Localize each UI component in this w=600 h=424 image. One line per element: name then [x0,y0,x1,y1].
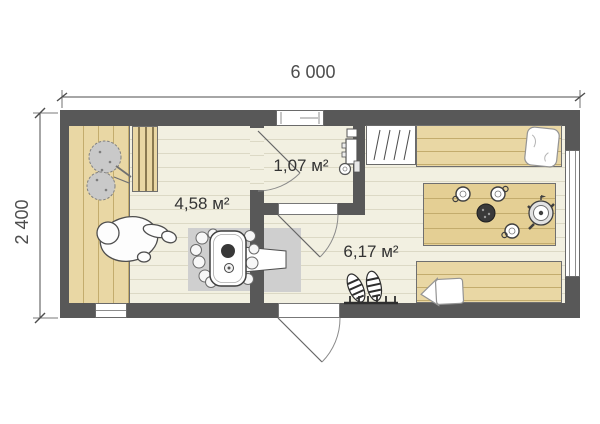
partition-washroom-bottom-right [338,203,365,215]
washroom-lounge-door-leaf [278,203,338,215]
window-top [276,110,324,126]
washroom-door-threshold [250,128,264,190]
lounge-area-label: 6,17 м² [333,242,409,262]
window-bottom [95,303,127,318]
partition-washroom-bottom-left [264,203,278,215]
sauna-side-bench [69,126,130,303]
dimension-depth-label: 2 400 [12,192,30,252]
hatched-shelf [366,125,416,165]
partition-sauna-top [250,110,264,128]
stove-pad-lounge [264,228,301,292]
partition-sauna-bottom [250,190,264,318]
entrance-door-leaf [278,303,340,318]
stove-pad-sauna [188,228,250,291]
floor-plan: 6 000 2 400 4,58 м² 1,07 м² 6,17 м² [0,0,600,424]
lounge-table [423,183,556,246]
lounge-top-bed [416,125,562,167]
sauna-area-label: 4,58 м² [164,194,240,214]
entrance-door-swing [278,318,340,362]
washroom-area-label: 1,07 м² [263,156,339,176]
lounge-bottom-bench [416,261,562,303]
dimension-width-label: 6 000 [273,62,353,83]
partition-washroom-right [353,110,365,215]
sauna-top-bench [132,126,158,192]
window-right [565,150,580,277]
